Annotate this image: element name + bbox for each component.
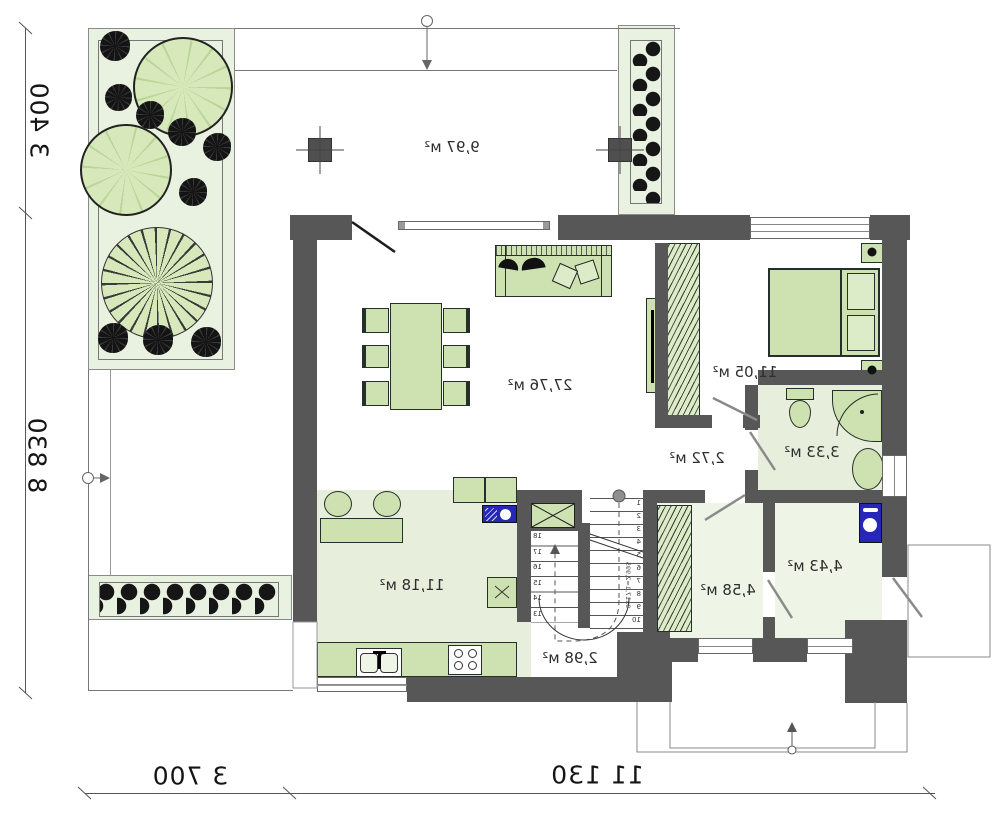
lamp-icon (868, 248, 877, 257)
room-label-living: 27,76 м² (507, 376, 572, 394)
stair-newel (613, 490, 625, 502)
axis-marker (83, 473, 94, 484)
entrance-porch-outline (908, 545, 990, 657)
door-leaf-bedroom (713, 398, 757, 420)
door-leaf-entry-room (768, 580, 792, 618)
porch-outline (637, 702, 907, 752)
door-leaf-closet (705, 495, 745, 520)
annotation-linework (0, 0, 1000, 822)
floor-plan-sheet: 18 17 16 15 14 13 1 2 3 4 5 6 7 8 9 10 9… (0, 0, 1000, 822)
porch-step (670, 702, 875, 748)
axis-arrow-icon (100, 473, 110, 483)
room-label-bathroom: 3,33 м² (784, 443, 840, 461)
stair-direction-arrow-icon (550, 544, 560, 554)
room-label-terrace: 9,97 м² (424, 138, 480, 156)
door-leaf-bathroom (750, 432, 775, 470)
axis-arrow-icon (422, 60, 432, 70)
room-label-hall: 2,72 м² (669, 449, 725, 467)
door-leaf-terrace (352, 222, 395, 252)
axis-marker (422, 16, 433, 27)
dimension-label-11130: 11 130 (550, 761, 643, 790)
shower-tray-arc (837, 394, 878, 436)
room-label-kitchen: 11,18 м² (379, 576, 444, 594)
dimension-label-3400: 3 400 (25, 82, 54, 159)
floor-plan: 18 17 16 15 14 13 1 2 3 4 5 6 7 8 9 10 9… (0, 0, 1000, 822)
lamp-icon (868, 366, 877, 375)
shower-drain-icon (860, 410, 864, 414)
entry-marker (788, 746, 796, 754)
room-label-stairs: 2,98 м² (542, 649, 598, 667)
room-label-closet: 4,58 м² (700, 581, 756, 599)
room-label-bedroom: 11,05 м² (712, 363, 777, 381)
dimension-label-8830: 8 830 (23, 417, 52, 494)
entry-arrow-icon (787, 722, 797, 732)
terrace-step (293, 622, 317, 688)
room-label-entry: 4,43 м² (787, 557, 843, 575)
dimension-label-3700: 3 700 (152, 762, 229, 791)
stair-walk-line (555, 552, 619, 641)
